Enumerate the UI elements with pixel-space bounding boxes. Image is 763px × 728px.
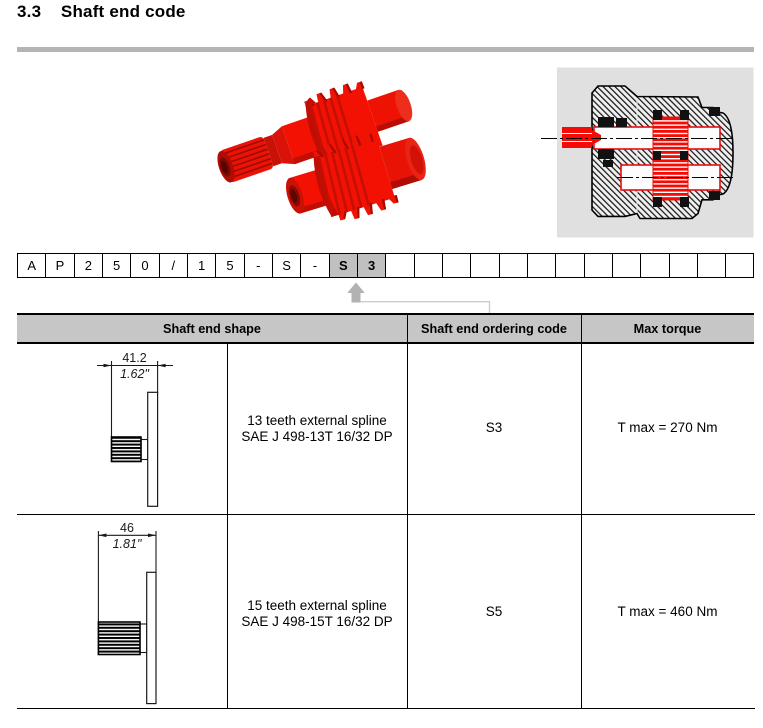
svg-text:1.62": 1.62" <box>120 367 149 381</box>
svg-text:46: 46 <box>120 521 134 535</box>
svg-text:1.81": 1.81" <box>113 537 142 551</box>
svg-text:41.2: 41.2 <box>122 351 146 365</box>
